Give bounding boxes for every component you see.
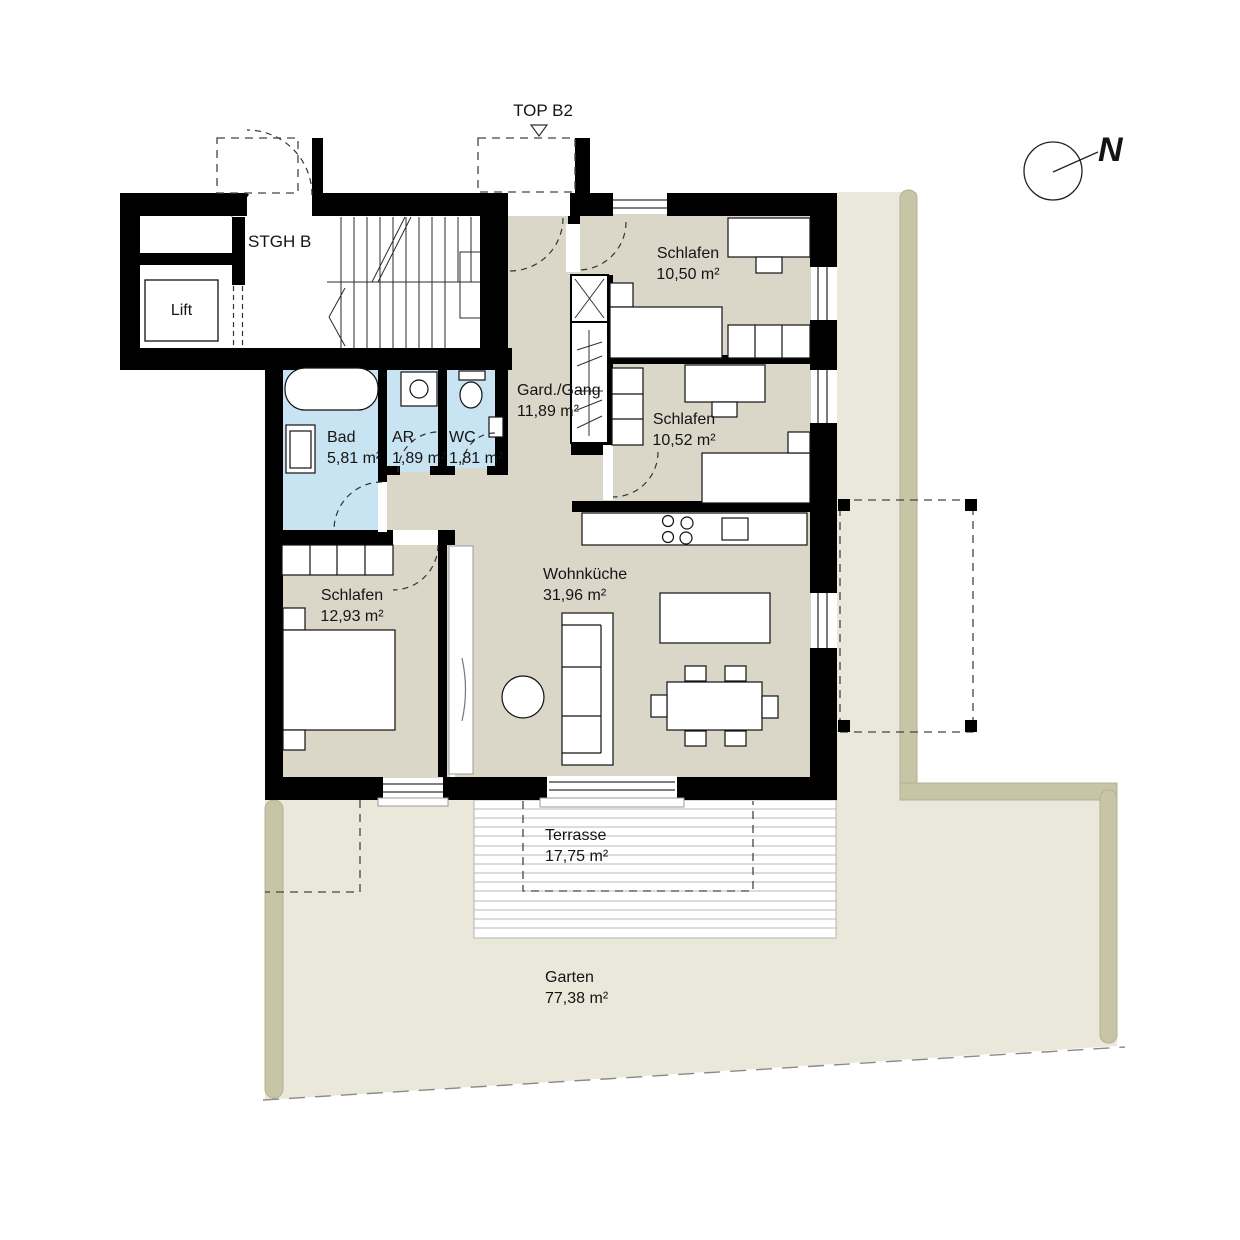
bed bbox=[610, 307, 722, 358]
nightstand bbox=[283, 730, 305, 750]
toilet-tank bbox=[459, 371, 485, 380]
room-label-gard-gang: Gard./Gang 11,89 m² bbox=[517, 380, 601, 422]
cooktop-burner bbox=[680, 532, 692, 544]
lift-label: Lift bbox=[145, 300, 218, 321]
sideboard bbox=[660, 593, 770, 643]
room-name: Gard./Gang bbox=[517, 380, 601, 401]
stairwell-label: STGH B bbox=[248, 231, 311, 252]
sofa bbox=[562, 613, 613, 765]
cooktop-burner bbox=[663, 516, 674, 527]
room-name: Schlafen bbox=[620, 243, 756, 264]
north-label: N bbox=[1098, 133, 1123, 167]
room-area: 1,89 m² bbox=[392, 448, 446, 469]
floor-plan: TOP B2 STGH B Lift Schlafen 10,50 m² Sch… bbox=[0, 0, 1240, 1240]
room-area: 1,81 m² bbox=[449, 448, 503, 469]
dining-chair bbox=[651, 695, 667, 717]
room-area: 5,81 m² bbox=[327, 448, 381, 469]
nightstand bbox=[788, 432, 810, 453]
room-label-bad: Bad 5,81 m² bbox=[327, 427, 381, 469]
porch-stairwell bbox=[217, 138, 298, 193]
porch-entry bbox=[478, 138, 575, 192]
staircase bbox=[327, 217, 500, 348]
nightstand bbox=[610, 283, 633, 307]
bed bbox=[283, 630, 395, 730]
dining-chair bbox=[762, 696, 778, 718]
desk bbox=[685, 365, 765, 402]
kitchen-counter bbox=[582, 513, 807, 545]
room-name: Garten bbox=[545, 967, 608, 988]
room-name: Terrasse bbox=[545, 825, 608, 846]
floor-plan-drawing bbox=[0, 0, 1240, 1240]
room-label-schlafen-1: Schlafen 10,50 m² bbox=[620, 243, 756, 285]
room-name: WC bbox=[449, 427, 503, 448]
room-area: 17,75 m² bbox=[545, 846, 608, 867]
north-arrow-icon bbox=[1024, 142, 1098, 200]
dining-chair bbox=[725, 731, 746, 746]
room-label-ar: AR 1,89 m² bbox=[392, 427, 446, 469]
lift-door-dashed bbox=[234, 286, 243, 346]
room-label-wc: WC 1,81 m² bbox=[449, 427, 503, 469]
room-label-schlafen-2: Schlafen 10,52 m² bbox=[616, 409, 752, 451]
room-area: 31,96 m² bbox=[543, 585, 627, 606]
bed bbox=[702, 453, 810, 503]
kitchen-sink bbox=[722, 518, 748, 540]
room-area: 77,38 m² bbox=[545, 988, 608, 1009]
wardrobe bbox=[728, 325, 810, 358]
room-label-wohnkueche: Wohnküche 31,96 m² bbox=[543, 564, 627, 606]
room-name: AR bbox=[392, 427, 446, 448]
installation-shaft bbox=[571, 275, 608, 322]
cooktop-burner bbox=[681, 517, 693, 529]
room-label-schlafen-3: Schlafen 12,93 m² bbox=[284, 585, 420, 627]
room-label-garten: Garten 77,38 m² bbox=[545, 967, 608, 1009]
room-area: 10,52 m² bbox=[616, 430, 752, 451]
room-name: Schlafen bbox=[616, 409, 752, 430]
room-name: Schlafen bbox=[284, 585, 420, 606]
stairwell-door-arc bbox=[247, 130, 312, 195]
unit-label: TOP B2 bbox=[497, 100, 589, 121]
room-label-terrasse: Terrasse 17,75 m² bbox=[545, 825, 608, 867]
chair bbox=[756, 257, 782, 273]
dining-chair bbox=[685, 731, 706, 746]
bathtub bbox=[285, 368, 378, 410]
dining-chair bbox=[725, 666, 746, 681]
entry-marker-icon bbox=[531, 125, 547, 136]
room-area: 10,50 m² bbox=[620, 264, 756, 285]
room-area: 11,89 m² bbox=[517, 401, 601, 422]
room-area: 12,93 m² bbox=[284, 606, 420, 627]
cooktop-burner bbox=[663, 532, 674, 543]
sliding-door-pocket bbox=[449, 546, 473, 774]
dining-chair bbox=[685, 666, 706, 681]
room-name: Wohnküche bbox=[543, 564, 627, 585]
room-name: Bad bbox=[327, 427, 381, 448]
terrace-decking bbox=[474, 800, 836, 938]
side-table bbox=[502, 676, 544, 718]
toilet bbox=[460, 382, 482, 408]
dining-table bbox=[667, 682, 762, 730]
